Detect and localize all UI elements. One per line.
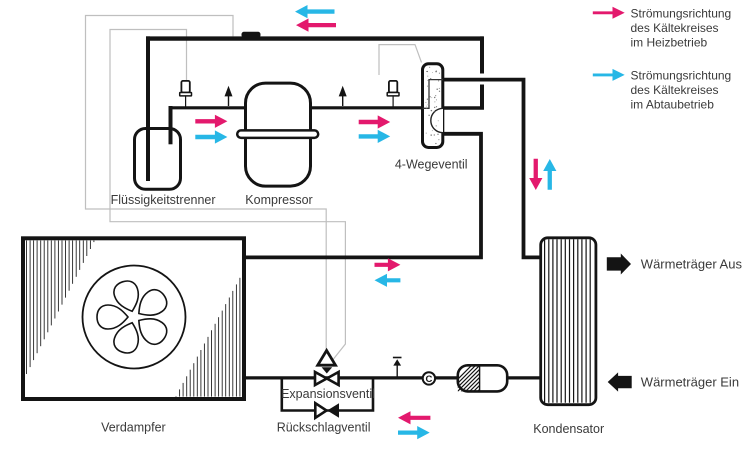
- svg-text:Flüssigkeitstrenner: Flüssigkeitstrenner: [111, 193, 216, 207]
- svg-text:Kondensator: Kondensator: [533, 422, 604, 436]
- svg-text:Kompressor: Kompressor: [245, 193, 312, 207]
- svg-text:Wärmeträger Aus: Wärmeträger Aus: [641, 257, 743, 272]
- svg-text:4-Wegeventil: 4-Wegeventil: [395, 158, 468, 172]
- svg-text:Strömungsrichtung: Strömungsrichtung: [631, 69, 732, 83]
- svg-text:Rückschlagventil: Rückschlagventil: [277, 421, 371, 435]
- svg-text:im Abtaubetrieb: im Abtaubetrieb: [631, 97, 715, 111]
- svg-text:Expansionsventil: Expansionsventil: [281, 387, 375, 401]
- svg-text:Strömungsrichtung: Strömungsrichtung: [631, 7, 732, 21]
- svg-text:im Heizbetrieb: im Heizbetrieb: [631, 35, 708, 49]
- svg-text:des Kältekreises: des Kältekreises: [631, 21, 719, 35]
- svg-text:Wärmeträger Ein: Wärmeträger Ein: [641, 375, 739, 390]
- svg-text:Verdampfer: Verdampfer: [101, 421, 166, 435]
- svg-text:des Kältekreises: des Kältekreises: [631, 83, 719, 97]
- svg-text:C: C: [425, 374, 432, 385]
